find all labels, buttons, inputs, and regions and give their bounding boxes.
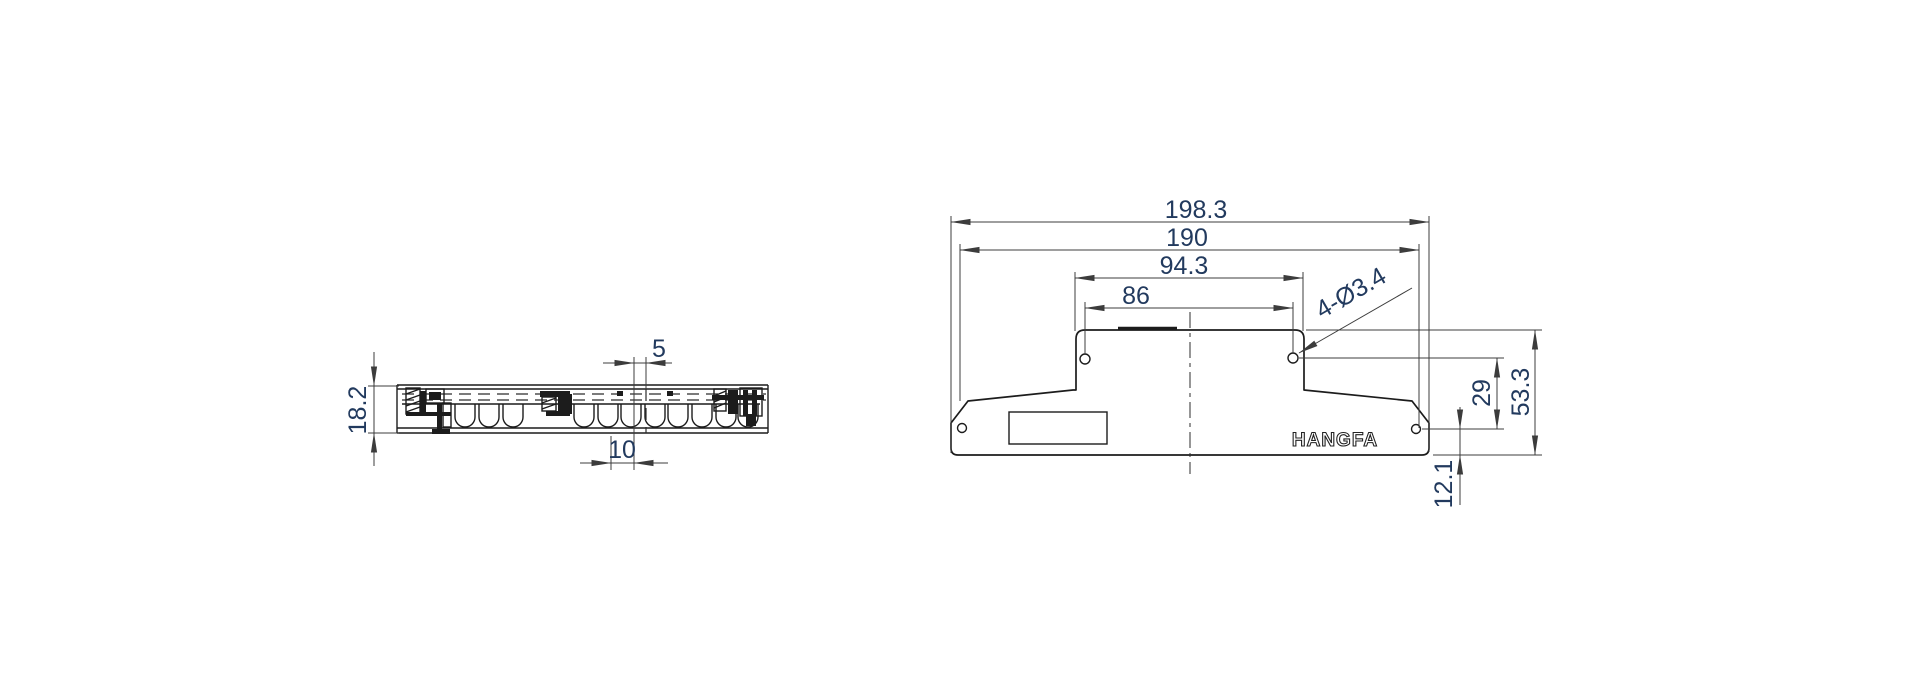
holes-callout: 4-Ø3.4 — [1299, 262, 1412, 353]
technical-drawing: 18.2 5 10 — [0, 0, 1920, 694]
dim-slot-pitch: 10 — [580, 436, 668, 470]
dim-thickness: 18.2 — [344, 352, 399, 466]
label-plate — [1009, 412, 1107, 444]
mount-hole-bottom-left — [958, 424, 967, 433]
dim-12-1-label: 12.1 — [1430, 460, 1458, 509]
dim-5-label: 5 — [652, 335, 666, 363]
mount-hole-top-right — [1288, 353, 1298, 363]
holes-callout-label: 4-Ø3.4 — [1311, 262, 1391, 325]
dim-lower-hole-offset: 12.1 — [1430, 407, 1460, 508]
hidden-fastener-mark — [617, 391, 623, 396]
side-view: 18.2 5 10 — [344, 335, 768, 470]
dim-190-label: 190 — [1166, 224, 1208, 252]
dim-18-2-label: 18.2 — [344, 386, 372, 435]
mount-hole-top-left — [1080, 354, 1090, 364]
dim-86-label: 86 — [1122, 282, 1150, 310]
brand-label: HANGFA — [1292, 430, 1378, 451]
dim-hole-rows-spacing: 29 — [1299, 358, 1504, 429]
dim-10-label: 10 — [608, 436, 636, 464]
dim-94-3-label: 94.3 — [1160, 252, 1209, 280]
dim-29-label: 29 — [1468, 379, 1496, 407]
hidden-fastener-mark — [667, 391, 673, 396]
drawing-canvas: 18.2 5 10 — [0, 0, 1920, 694]
caster-bracket-left — [406, 388, 451, 434]
dim-53-3-label: 53.3 — [1507, 368, 1535, 417]
roller-row — [455, 404, 758, 427]
front-view: HANGFA 198.3 190 94.3 86 4-Ø3.4 — [951, 196, 1542, 508]
dim-top-width: 94.3 — [1075, 252, 1303, 331]
dim-198-3-label: 198.3 — [1165, 196, 1228, 224]
dim-top-hole-span: 86 — [1085, 282, 1293, 354]
